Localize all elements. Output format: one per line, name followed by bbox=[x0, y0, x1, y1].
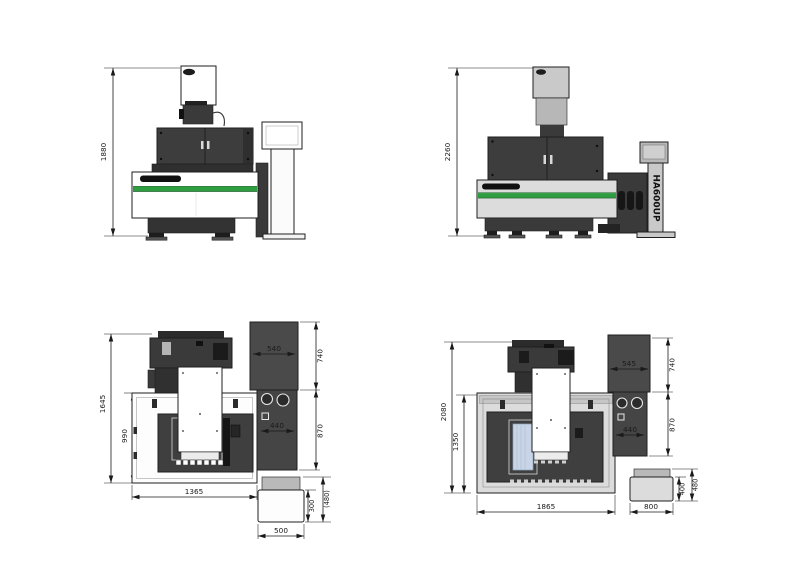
mid-band bbox=[152, 164, 253, 172]
center-dot bbox=[199, 413, 201, 415]
side-block bbox=[155, 368, 181, 393]
foot bbox=[578, 231, 588, 235]
power-unit-step bbox=[598, 224, 620, 233]
clamp-tab bbox=[152, 399, 157, 408]
dim-label: 1350 bbox=[451, 432, 460, 451]
head-detail bbox=[544, 344, 554, 348]
vent-slot bbox=[636, 191, 643, 210]
dielectric-cabinet bbox=[250, 322, 298, 390]
slot bbox=[183, 460, 188, 465]
foot-plate bbox=[575, 235, 591, 238]
dim-label: 870 bbox=[668, 418, 677, 432]
dim-label-height-a: 1880 bbox=[99, 142, 108, 161]
head-neck bbox=[536, 98, 567, 125]
foot bbox=[512, 231, 522, 235]
drawing-canvas: 1880 bbox=[0, 0, 800, 565]
screw-dot bbox=[564, 427, 566, 429]
foot-plate bbox=[509, 235, 525, 238]
brand-plate bbox=[140, 176, 181, 183]
hinge-dot bbox=[160, 132, 162, 134]
wall-latch bbox=[134, 452, 138, 459]
dim-label: 870 bbox=[316, 424, 325, 438]
vent-slot bbox=[627, 191, 634, 210]
head-top-bar bbox=[158, 331, 224, 338]
dim-label: 480 bbox=[692, 479, 700, 492]
work-table bbox=[513, 424, 533, 470]
console-base bbox=[263, 234, 305, 239]
screw-dot bbox=[216, 372, 218, 374]
plan-view-machine-b: 2080 1350 545 bbox=[439, 335, 700, 515]
foot bbox=[487, 231, 497, 235]
dim-label: 400 bbox=[679, 483, 687, 496]
dim-label: 1865 bbox=[537, 502, 556, 511]
knob bbox=[277, 394, 289, 406]
door-handle bbox=[544, 155, 547, 164]
plinth bbox=[485, 218, 593, 231]
table-band bbox=[534, 452, 568, 460]
screw-dot bbox=[536, 427, 538, 429]
foot-plate bbox=[212, 237, 233, 240]
dim-label: 1645 bbox=[98, 395, 107, 414]
hinge-dot bbox=[491, 174, 493, 176]
cable bbox=[213, 112, 224, 126]
dim-label: 740 bbox=[316, 349, 325, 363]
ram-column bbox=[178, 367, 222, 452]
cavity-block bbox=[231, 425, 240, 437]
table-band bbox=[181, 452, 219, 460]
dim-label-height-b: 2260 bbox=[443, 142, 452, 161]
hinge-dot bbox=[491, 140, 493, 142]
hinge-dot bbox=[596, 145, 598, 147]
dim-label: 545 bbox=[622, 359, 636, 368]
reservoir-body bbox=[258, 490, 304, 522]
dim-label: 1365 bbox=[185, 487, 204, 496]
screw-dot bbox=[564, 373, 566, 375]
console-column bbox=[271, 149, 294, 234]
slot bbox=[211, 460, 216, 465]
foot-plate bbox=[484, 235, 500, 238]
hinge-dot bbox=[596, 170, 598, 172]
door-handle bbox=[550, 155, 553, 164]
head-detail bbox=[162, 342, 171, 355]
head-tab bbox=[179, 109, 184, 119]
dim-label: 740 bbox=[668, 358, 677, 372]
clamp-tab bbox=[233, 399, 238, 408]
dim-label: 990 bbox=[120, 429, 129, 443]
reservoir-body bbox=[630, 477, 673, 501]
clamp-tab bbox=[500, 400, 505, 409]
slot bbox=[190, 460, 195, 465]
knob bbox=[262, 394, 273, 405]
vent-slot bbox=[618, 191, 625, 210]
plinth bbox=[148, 218, 235, 233]
foot-plate bbox=[546, 235, 562, 238]
slot bbox=[197, 460, 202, 465]
knob bbox=[617, 398, 627, 408]
hinge-dot bbox=[247, 158, 249, 160]
head-detail bbox=[196, 341, 203, 346]
brand-plate bbox=[482, 184, 520, 190]
head-motor bbox=[558, 350, 574, 365]
screw-dot bbox=[182, 372, 184, 374]
front-view-machine-b: 2260 HA600UP bbox=[443, 67, 675, 238]
slot bbox=[204, 460, 209, 465]
door-handle bbox=[207, 141, 210, 149]
green-stripe bbox=[478, 193, 616, 198]
center-dot bbox=[550, 419, 552, 421]
console-screen bbox=[643, 145, 665, 159]
cavity-block bbox=[575, 428, 583, 438]
dim-label: 540 bbox=[267, 344, 281, 353]
hinge-dot bbox=[160, 158, 162, 160]
front-view-machine-a: 1880 bbox=[99, 66, 305, 240]
wall-latch bbox=[134, 427, 138, 434]
screw-dot bbox=[536, 373, 538, 375]
head-top-bar bbox=[512, 340, 564, 347]
cavity-bar bbox=[223, 418, 230, 466]
slot bbox=[218, 460, 223, 465]
clamp-tab bbox=[588, 400, 593, 409]
knob bbox=[632, 398, 643, 409]
console-base bbox=[637, 232, 675, 238]
dim-label: 500 bbox=[274, 526, 288, 535]
hinge-dot bbox=[247, 132, 249, 134]
dim-label: 800 bbox=[644, 502, 658, 511]
foot bbox=[149, 233, 164, 237]
dim-label: 300 bbox=[308, 500, 316, 513]
screw-dot bbox=[216, 430, 218, 432]
door-handle bbox=[201, 141, 204, 149]
dim-label: 2080 bbox=[439, 402, 448, 421]
dim-label: (480) bbox=[323, 490, 331, 508]
screw-dot bbox=[182, 430, 184, 432]
slot bbox=[176, 460, 181, 465]
head-port bbox=[536, 69, 546, 75]
dim-label: 440 bbox=[270, 421, 284, 430]
slot-row bbox=[176, 460, 223, 465]
foot-plate bbox=[146, 237, 167, 240]
dim-label: 440 bbox=[623, 425, 637, 434]
green-stripe bbox=[133, 187, 257, 192]
head-lower-unit bbox=[183, 105, 213, 124]
head-motor bbox=[213, 343, 228, 360]
model-label: HA600UP bbox=[651, 174, 661, 222]
ram-column bbox=[532, 368, 570, 452]
head-detail bbox=[519, 351, 529, 363]
head-port bbox=[183, 69, 195, 75]
foot bbox=[549, 231, 559, 235]
foot bbox=[215, 233, 230, 237]
dimension-drawing: 1880 bbox=[0, 0, 800, 565]
neck-band bbox=[540, 125, 564, 137]
plan-view-machine-a: 1645 990 bbox=[98, 322, 331, 539]
